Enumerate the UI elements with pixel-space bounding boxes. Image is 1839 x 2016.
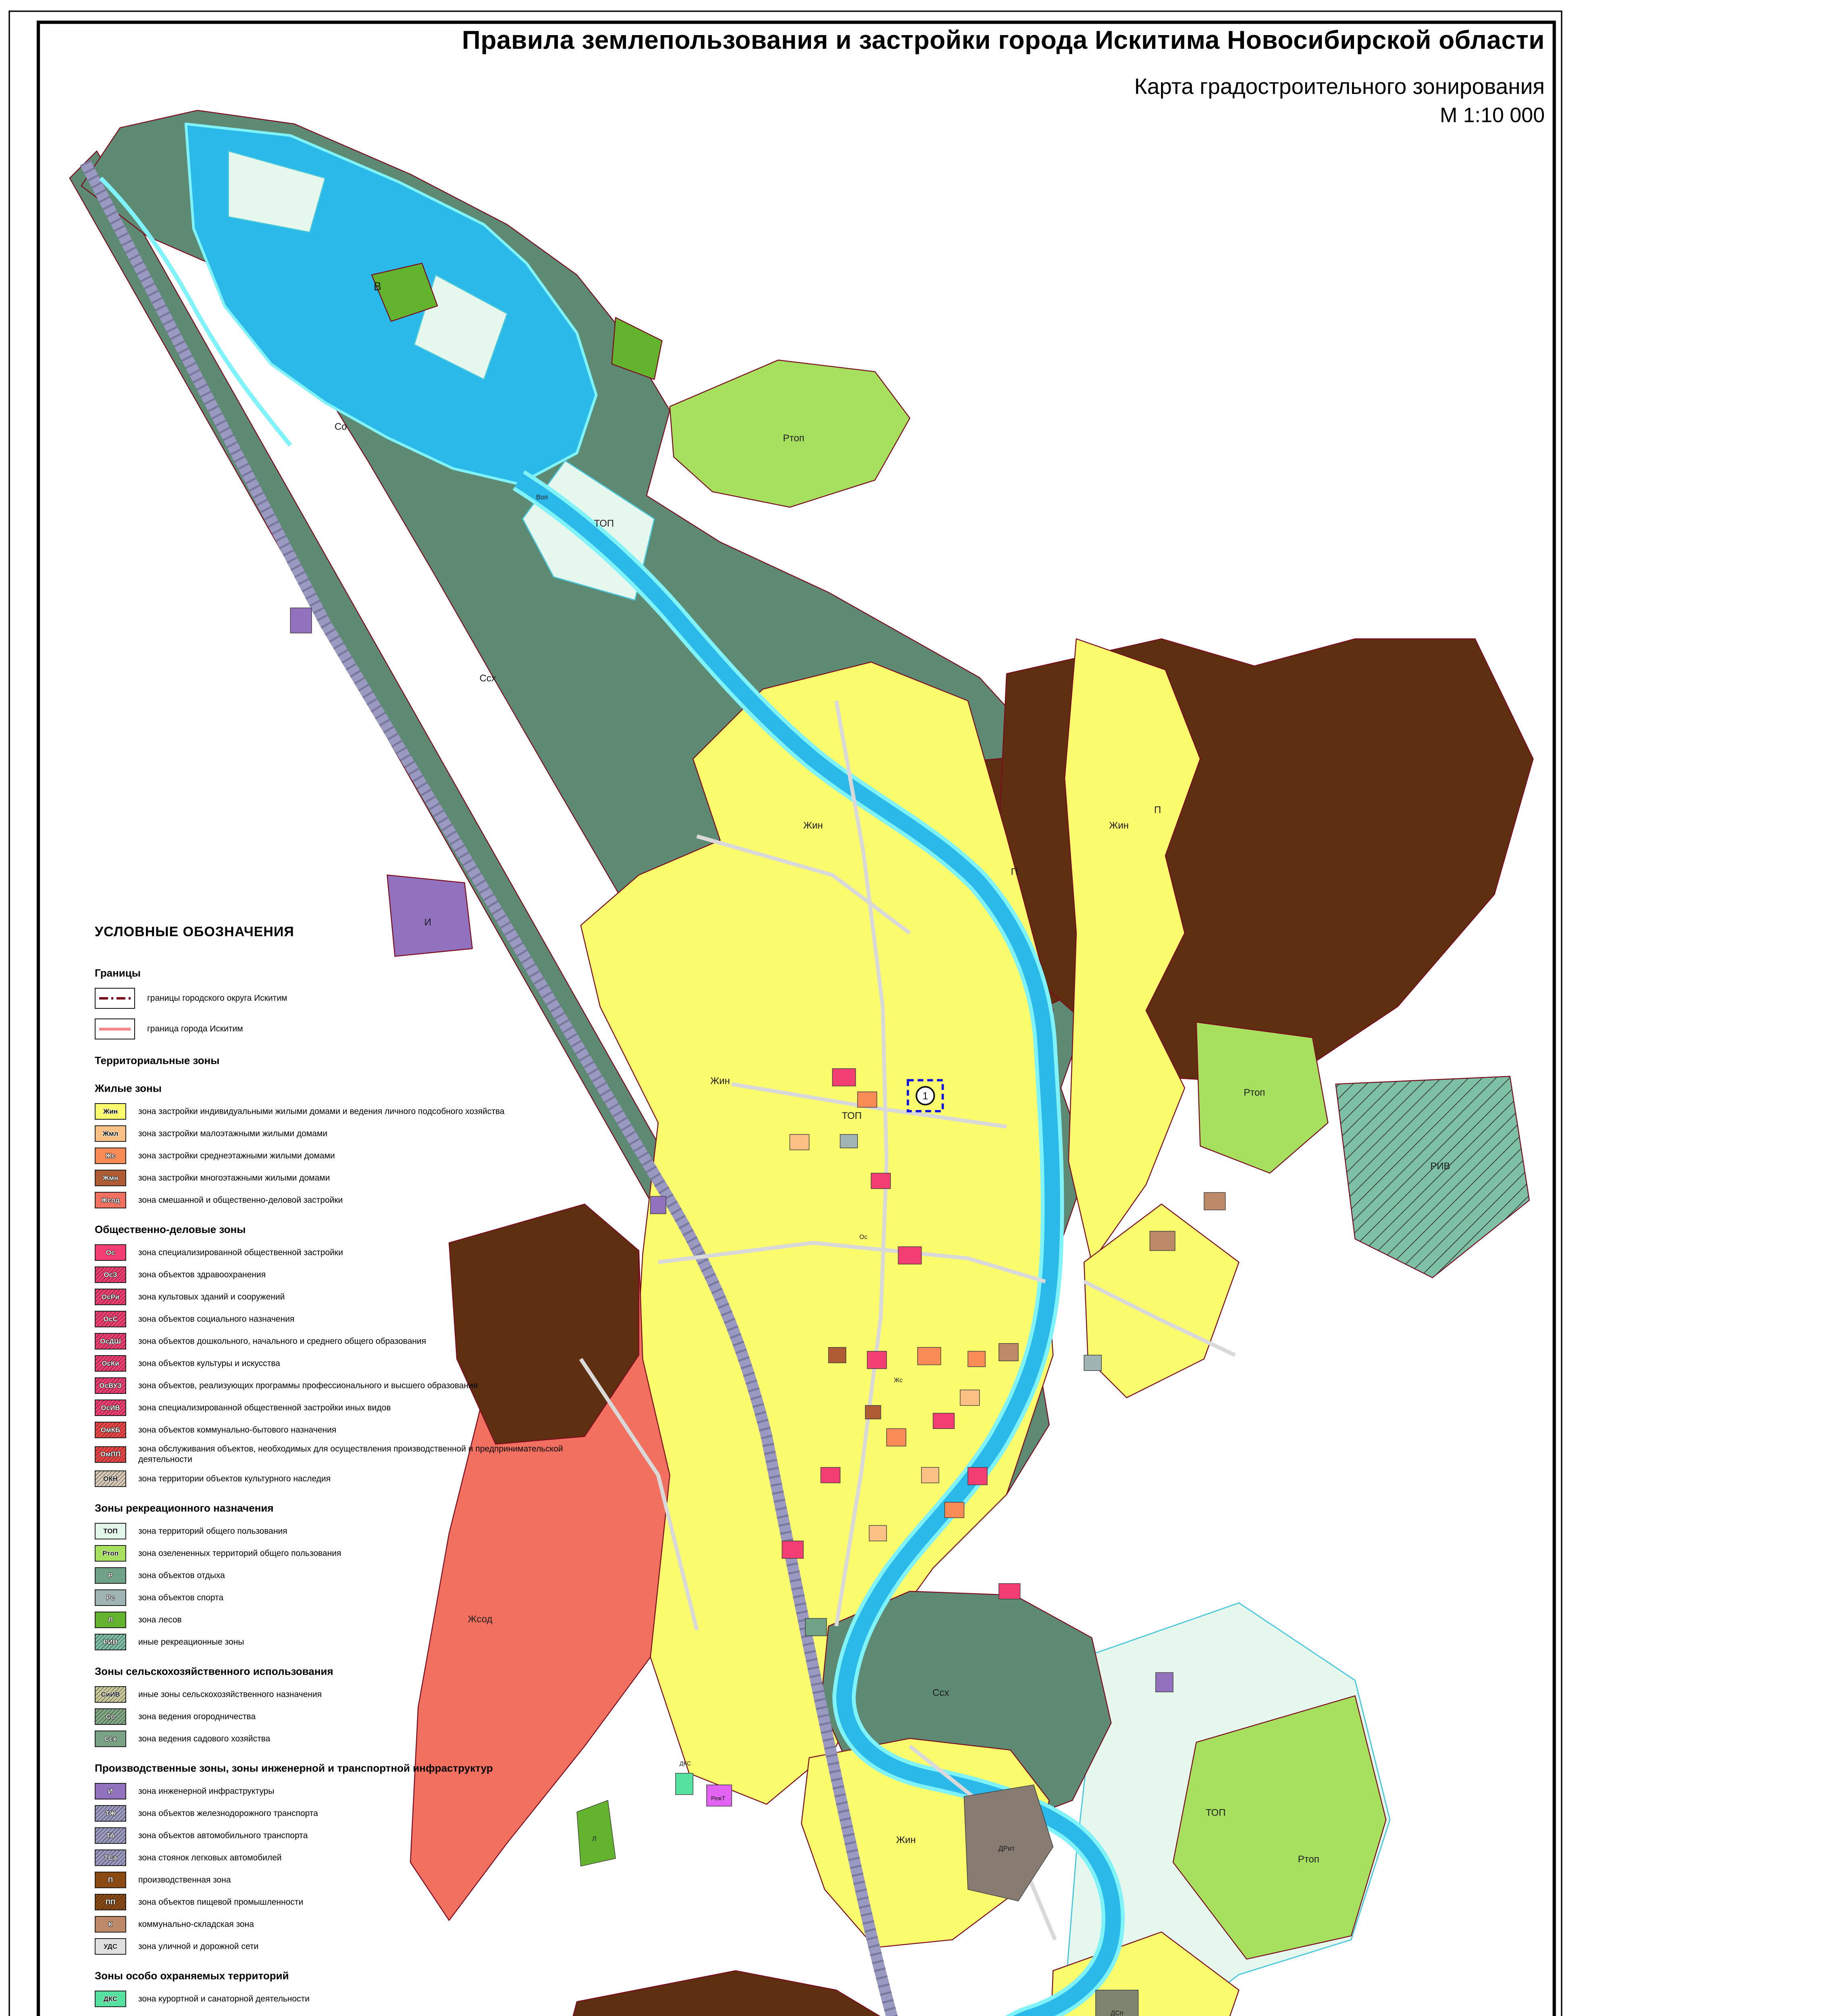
zone-label: зона объектов пищевой промышленности <box>138 1897 303 1908</box>
svg-text:П: П <box>1154 805 1161 816</box>
zone-code: ПП <box>106 1898 115 1906</box>
legend-item: ОмКБ зона объектов коммунально-бытового … <box>95 1422 570 1438</box>
legend-swatch: Ос <box>95 1244 126 1261</box>
legend-item: П производственная зона <box>95 1872 570 1888</box>
legend-section-header: Производственные зоны, зоны инженерной и… <box>95 1762 570 1775</box>
svg-text:Жин: Жин <box>896 1835 916 1845</box>
zone-label: иные рекреационные зоны <box>138 1637 244 1647</box>
legend-item: ОсРи зона культовых зданий и сооружений <box>95 1289 570 1305</box>
zone-label: зона курортной и санаторной деятельности <box>138 1994 310 2004</box>
zone-code: Ос <box>106 1249 115 1257</box>
svg-text:Жин: Жин <box>710 1076 730 1087</box>
zone-label: зона ведения огородничества <box>138 1712 256 1722</box>
legend-swatch: И <box>95 1783 126 1799</box>
legend-swatch: Жсод <box>95 1192 126 1208</box>
legend-swatch: ОсИВ <box>95 1400 126 1416</box>
zone-label: зона специализированной общественной зас… <box>138 1403 391 1413</box>
legend-swatch: РИВ <box>95 1634 126 1650</box>
legend-swatch: ТСа <box>95 1849 126 1866</box>
legend-section-header: Жилые зоны <box>95 1082 570 1095</box>
svg-text:ТОП: ТОП <box>842 1110 862 1121</box>
zone-label: зона объектов железнодорожного транспорт… <box>138 1808 318 1819</box>
legend-item: ТОП зона территорий общего пользования <box>95 1523 570 1539</box>
legend-swatch: Ссх <box>95 1731 126 1747</box>
zone-label: зона смешанной и общественно-деловой зас… <box>138 1195 343 1206</box>
zone-label: зона культовых зданий и сооружений <box>138 1292 285 1302</box>
svg-text:Л: Л <box>592 1835 597 1843</box>
zone-code: Ссх <box>104 1735 117 1743</box>
zone-code: РИВ <box>103 1638 118 1646</box>
legend-section-header: Зоны рекреационного назначения <box>95 1502 570 1515</box>
legend-swatch: Л <box>95 1612 126 1628</box>
zone-code: ТА <box>106 1832 115 1840</box>
legend: УСЛОВНЫЕ ОБОЗНАЧЕНИЯ Границы границы гор… <box>95 924 570 2016</box>
legend-section-header: Зоны сельскохозяйственного использования <box>95 1665 570 1678</box>
legend-item: ОсС зона объектов социального назначения <box>95 1311 570 1327</box>
zone-label: зона уличной и дорожной сети <box>138 1941 258 1952</box>
zone-code: ДКС <box>104 1995 118 2003</box>
legend-item: И зона инженерной инфраструктуры <box>95 1783 570 1799</box>
legend-swatch: ОмПП <box>95 1446 126 1463</box>
legend-swatch: ТЖ <box>95 1805 126 1822</box>
zone-label: зона инженерной инфраструктуры <box>138 1786 274 1797</box>
zone-label: иные зоны сельскохозяйственного назначен… <box>138 1689 322 1700</box>
legend-item: ТСа зона стоянок легковых автомобилей <box>95 1849 570 1866</box>
zone-label: зона застройки малоэтажными жилыми домам… <box>138 1129 327 1139</box>
svg-text:ДСп: ДСп <box>1111 2010 1123 2016</box>
boundary-label: граница города Искитим <box>147 1024 243 1034</box>
zone-code: К <box>108 1920 112 1929</box>
legend-swatch: ОсВУЗ <box>95 1377 126 1394</box>
zone-code: ТСа <box>104 1854 117 1862</box>
svg-text:Ссх: Ссх <box>479 673 496 684</box>
legend-swatch: Жмн <box>95 1170 126 1186</box>
legend-swatch: Р <box>95 1567 126 1584</box>
legend-item: Со зона ведения огородничества <box>95 1708 570 1725</box>
svg-text:Жин: Жин <box>803 820 823 831</box>
legend-item: СиИВ иные зоны сельскохозяйственного наз… <box>95 1686 570 1703</box>
legend-section-header: Территориальные зоны <box>95 1054 570 1067</box>
legend-swatch: ОсКи <box>95 1355 126 1372</box>
legend-item: Жин зона застройки индивидуальными жилым… <box>95 1103 570 1120</box>
zone-code: Со <box>106 1713 115 1721</box>
svg-text:РИВ: РИВ <box>1430 1161 1450 1172</box>
zone-label: зона территории объектов культурного нас… <box>138 1474 331 1484</box>
zone-code: Жмл <box>103 1130 119 1138</box>
legend-item: Л зона лесов <box>95 1612 570 1628</box>
legend-item: Рс зона объектов спорта <box>95 1589 570 1606</box>
legend-item: Ртоп зона озелененных территорий общего … <box>95 1545 570 1562</box>
legend-swatch: ОсС <box>95 1311 126 1327</box>
legend-item-boundary: граница города Искитим <box>95 1018 570 1039</box>
svg-text:Ртоп: Ртоп <box>1298 1854 1319 1865</box>
svg-text:Жс: Жс <box>894 1377 903 1384</box>
zone-code: Жмн <box>103 1174 118 1182</box>
zone-label: зона территорий общего пользования <box>138 1526 287 1537</box>
zone-code: Жин <box>103 1108 118 1116</box>
zone-code: УДС <box>104 1943 117 1951</box>
zone-code: ОсИВ <box>101 1404 120 1412</box>
legend-item: ОмПП зона обслуживания объектов, необход… <box>95 1444 570 1465</box>
zone-forest-south <box>577 1800 616 1866</box>
legend-swatch: ОсРи <box>95 1289 126 1305</box>
legend-item: ОсДШ зона объектов дошкольного, начально… <box>95 1333 570 1350</box>
legend-item: Жмл зона застройки малоэтажными жилыми д… <box>95 1125 570 1142</box>
map-header: Правила землепользования и застройки гор… <box>462 25 1545 127</box>
legend-title: УСЛОВНЫЕ ОБОЗНАЧЕНИЯ <box>95 924 570 940</box>
zone-label: зона объектов социального назначения <box>138 1314 294 1325</box>
zone-label: зона застройки индивидуальными жилыми до… <box>138 1106 504 1117</box>
zone-label: зона объектов коммунально-бытового назна… <box>138 1425 336 1435</box>
legend-swatch: Со <box>95 1708 126 1725</box>
legend-item: К коммунально-складская зона <box>95 1916 570 1933</box>
zone-production-southwest <box>542 1971 1046 2016</box>
legend-swatch: Жмл <box>95 1125 126 1142</box>
zone-label: зона застройки многоэтажными жилыми дома… <box>138 1173 330 1183</box>
zone-code: ТЖ <box>105 1810 116 1818</box>
boundary-line-swatch <box>95 1018 135 1039</box>
zone-code: И <box>108 1787 113 1795</box>
boundary-line-swatch <box>95 988 135 1009</box>
zone-code: Жс <box>106 1152 116 1160</box>
zone-code: ОсЗ <box>104 1271 117 1279</box>
legend-item: ОКН зона территории объектов культурного… <box>95 1470 570 1487</box>
svg-text:РежТ: РежТ <box>711 1795 725 1802</box>
zone-code: ОКН <box>103 1475 118 1483</box>
legend-item: Ос зона специализированной общественной … <box>95 1244 570 1261</box>
legend-item: ТА зона объектов автомобильного транспор… <box>95 1827 570 1844</box>
zone-riv-east-hatch <box>1336 1077 1529 1278</box>
zone-code: Ртоп <box>102 1549 119 1558</box>
zone-label: зона обслуживания объектов, необходимых … <box>138 1444 570 1465</box>
legend-swatch: УДС <box>95 1938 126 1955</box>
zone-label: зона объектов здравоохранения <box>138 1270 266 1280</box>
svg-text:Ртоп: Ртоп <box>1244 1087 1265 1098</box>
legend-swatch: К <box>95 1916 126 1933</box>
zone-code: ОсРи <box>102 1293 119 1301</box>
zone-code: ОсКи <box>102 1360 119 1368</box>
legend-item: ДКС зона курортной и санаторной деятельн… <box>95 1991 570 2007</box>
zone-label: зона озелененных территорий общего польз… <box>138 1548 341 1559</box>
svg-text:Жин: Жин <box>1109 820 1129 831</box>
svg-text:Ос: Ос <box>859 1234 867 1241</box>
zone-label: зона стоянок легковых автомобилей <box>138 1853 282 1863</box>
zone-label: зона специализированной общественной зас… <box>138 1248 343 1258</box>
legend-item: ОсКи зона объектов культуры и искусства <box>95 1355 570 1372</box>
legend-swatch: Жс <box>95 1148 126 1164</box>
map-scale: М 1:10 000 <box>462 103 1545 127</box>
svg-text:ДРит: ДРит <box>999 1844 1015 1852</box>
zone-code: ОсВУЗ <box>99 1382 122 1390</box>
svg-text:Воп: Воп <box>536 494 548 501</box>
zone-label: зона ведения садового хозяйства <box>138 1734 270 1744</box>
legend-item: ОсИВ зона специализированной общественно… <box>95 1400 570 1416</box>
legend-item: Ссх зона ведения садового хозяйства <box>95 1731 570 1747</box>
legend-swatch: ОКН <box>95 1470 126 1487</box>
map-title: Правила землепользования и застройки гор… <box>462 25 1545 55</box>
legend-item: Жмн зона застройки многоэтажными жилыми … <box>95 1170 570 1186</box>
zone-code: ТОП <box>103 1527 117 1535</box>
zone-label: зона объектов дошкольного, начального и … <box>138 1336 426 1347</box>
legend-swatch: СиИВ <box>95 1686 126 1703</box>
zone-code: ОсДШ <box>100 1337 121 1345</box>
zone-code: СиИВ <box>101 1691 120 1699</box>
svg-text:Со: Со <box>335 421 347 432</box>
legend-item: УДС зона уличной и дорожной сети <box>95 1938 570 1955</box>
legend-swatch: ПП <box>95 1894 126 1910</box>
legend-swatch: ТОП <box>95 1523 126 1539</box>
zone-label: коммунально-складская зона <box>138 1919 254 1930</box>
boundary-label: границы городского округа Искитим <box>147 993 287 1004</box>
zone-code: ОмКБ <box>101 1426 120 1434</box>
svg-text:Ртоп: Ртоп <box>783 433 804 444</box>
zone-label: зона лесов <box>138 1615 182 1625</box>
zone-code: Р <box>108 1572 112 1580</box>
svg-text:1: 1 <box>922 1091 928 1102</box>
zone-label: производственная зона <box>138 1875 231 1885</box>
zone-label: зона объектов, реализующих программы про… <box>138 1381 478 1391</box>
svg-text:ТОП: ТОП <box>1206 1808 1226 1818</box>
legend-swatch: Ртоп <box>95 1545 126 1562</box>
legend-item: Р зона объектов отдыха <box>95 1567 570 1584</box>
legend-swatch: ОсЗ <box>95 1266 126 1283</box>
zone-dks-patch <box>676 1773 693 1795</box>
legend-item: Жсод зона смешанной и общественно-делово… <box>95 1192 570 1208</box>
legend-item: Жс зона застройки среднеэтажными жилыми … <box>95 1148 570 1164</box>
legend-section-header: Границы <box>95 966 570 980</box>
zone-label: зона объектов культуры и искусства <box>138 1358 280 1369</box>
legend-swatch: Жин <box>95 1103 126 1120</box>
svg-text:Ссх: Ссх <box>932 1687 949 1698</box>
zone-label: зона объектов отдыха <box>138 1570 225 1581</box>
legend-section-header: Общественно-деловые зоны <box>95 1223 570 1236</box>
zone-label: зона застройки среднеэтажными жилыми дом… <box>138 1151 335 1161</box>
legend-item: ОсЗ зона объектов здравоохранения <box>95 1266 570 1283</box>
legend-swatch: Рс <box>95 1589 126 1606</box>
legend-item: ПП зона объектов пищевой промышленности <box>95 1894 570 1910</box>
zone-code: Жсод <box>101 1196 120 1204</box>
legend-item-boundary: границы городского округа Искитим <box>95 988 570 1009</box>
legend-item: ТЖ зона объектов железнодорожного трансп… <box>95 1805 570 1822</box>
legend-section-header: Зоны особо охраняемых территорий <box>95 1969 570 1983</box>
svg-text:В: В <box>374 280 381 293</box>
zone-code: П <box>108 1876 113 1884</box>
zone-label: зона объектов спорта <box>138 1593 223 1603</box>
legend-swatch: ОсДШ <box>95 1333 126 1350</box>
sheet-page: ВВопТОПТОПСсхСоРтопППЖинЖинЖинЖинЖсодСсх… <box>0 0 1839 2016</box>
legend-swatch: П <box>95 1872 126 1888</box>
zone-code: ОмПП <box>100 1450 121 1458</box>
svg-text:ДКС: ДКС <box>680 1761 691 1767</box>
map-subtitle: Карта градостроительного зонирования <box>462 73 1545 99</box>
zone-code: Л <box>108 1616 113 1624</box>
legend-swatch: ТА <box>95 1827 126 1844</box>
zone-code: ОсС <box>104 1315 118 1323</box>
svg-text:П: П <box>1011 866 1018 877</box>
svg-text:ТОП: ТОП <box>594 518 614 529</box>
legend-swatch: ДКС <box>95 1991 126 2007</box>
legend-item: РИВ иные рекреационные зоны <box>95 1634 570 1650</box>
legend-swatch: ОмКБ <box>95 1422 126 1438</box>
zone-code: Рс <box>106 1594 115 1602</box>
legend-item: ОсВУЗ зона объектов, реализующих програм… <box>95 1377 570 1394</box>
zone-label: зона объектов автомобильного транспорта <box>138 1831 308 1841</box>
